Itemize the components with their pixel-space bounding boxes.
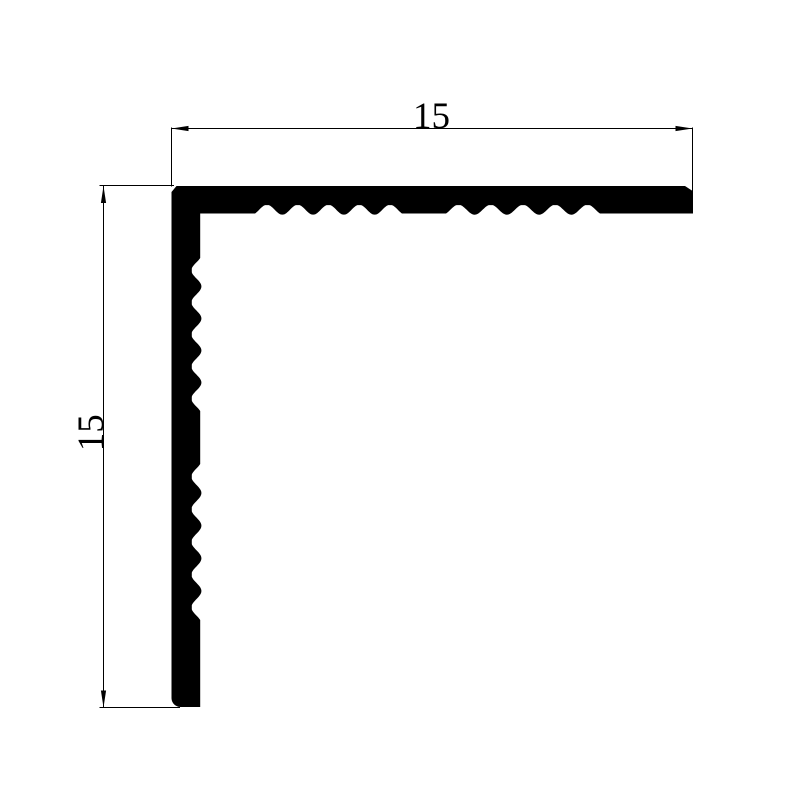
svg-text:15: 15 — [413, 96, 450, 137]
svg-text:15: 15 — [71, 414, 112, 451]
